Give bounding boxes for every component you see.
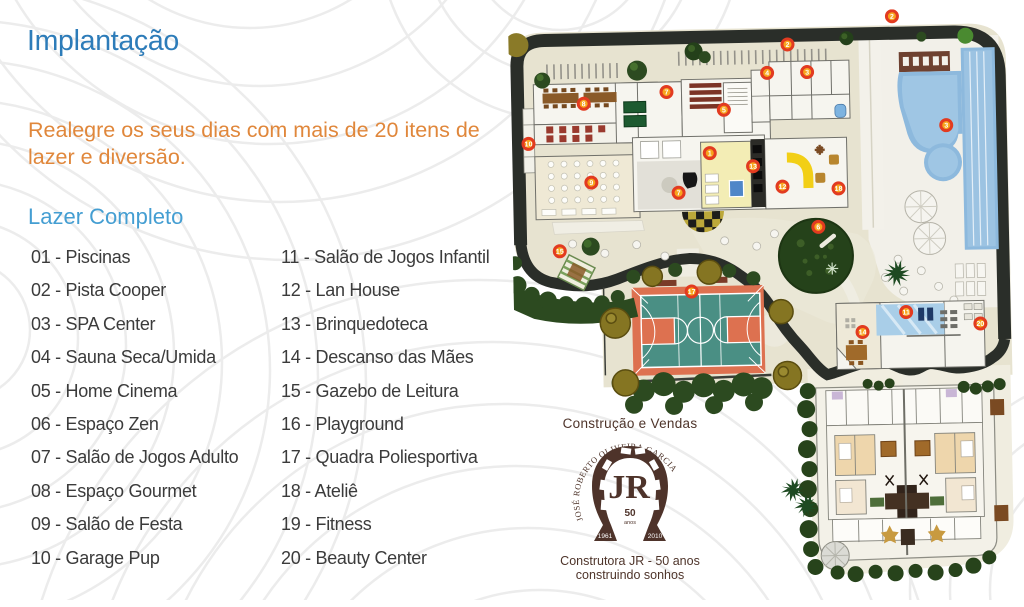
svg-text:7: 7 <box>664 89 668 96</box>
svg-text:10: 10 <box>525 141 533 148</box>
svg-text:17: 17 <box>688 289 696 296</box>
svg-text:15: 15 <box>556 249 564 256</box>
svg-text:20: 20 <box>976 321 984 328</box>
svg-text:3: 3 <box>805 70 809 77</box>
svg-text:4: 4 <box>765 70 769 77</box>
svg-text:1: 1 <box>708 151 712 158</box>
svg-text:14: 14 <box>859 329 867 336</box>
svg-text:7: 7 <box>677 190 681 197</box>
svg-text:8: 8 <box>582 101 586 108</box>
svg-text:12: 12 <box>779 184 787 191</box>
svg-text:5: 5 <box>722 107 726 114</box>
svg-text:13: 13 <box>749 164 757 171</box>
svg-text:9: 9 <box>589 180 593 187</box>
svg-text:11: 11 <box>902 309 910 316</box>
svg-text:3: 3 <box>944 123 948 130</box>
svg-text:2: 2 <box>786 42 790 49</box>
svg-text:2: 2 <box>890 14 894 21</box>
svg-text:18: 18 <box>835 186 843 193</box>
svg-text:6: 6 <box>816 224 820 231</box>
